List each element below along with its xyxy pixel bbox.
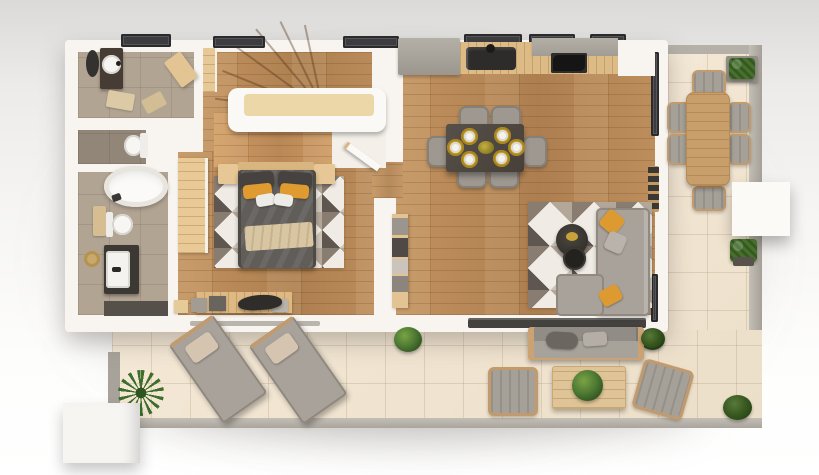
sofa-chaise (556, 274, 604, 316)
dining-chair-right (523, 136, 547, 167)
lounger-pillow (264, 332, 300, 366)
kitchen-tap (486, 44, 495, 53)
roof-window-3 (343, 36, 399, 48)
roof-window-1 (121, 34, 171, 47)
plate (511, 142, 522, 153)
desk-box-grey (191, 298, 207, 312)
basin-tap (116, 61, 121, 66)
placemat-5 (447, 139, 464, 156)
plate (450, 142, 461, 153)
terrace-main-curb-bottom (112, 418, 762, 428)
porch-block (732, 182, 790, 236)
boxwood-top (729, 58, 755, 79)
placemat-3 (461, 151, 478, 168)
terrace-main-wall-stub (108, 352, 120, 410)
plate (464, 131, 475, 142)
kitchen-cabinet-left (398, 38, 460, 75)
shower-mat (104, 301, 168, 316)
sideboard-box-taupe (392, 276, 408, 292)
placemat-6 (508, 139, 525, 156)
wc-toilet-tank (140, 133, 148, 158)
washbasin-tap (112, 267, 121, 272)
roof-window-2 (213, 36, 265, 48)
placemat-2 (494, 127, 511, 144)
terrace-bush-left (394, 327, 422, 352)
wooden-stand (93, 206, 106, 236)
plate (464, 154, 475, 165)
placemat-1 (461, 128, 478, 145)
white-planter-cube (63, 403, 140, 463)
wall-mirror (86, 50, 99, 77)
terrace-chair-right-1 (728, 102, 751, 133)
coffee-table-decor-gold (566, 232, 578, 241)
desk-box-beige (174, 300, 188, 313)
nightstand-right (314, 164, 335, 184)
hall-cabinet (203, 48, 217, 92)
bed-throw-blanket (244, 222, 314, 252)
table-centerpiece (478, 141, 494, 154)
kitchen-corner-wall (618, 40, 655, 76)
terrace-chair-right-2 (728, 134, 751, 165)
outdoor-sofa-pillow-dark (546, 331, 579, 350)
plate (496, 153, 507, 164)
floorplan-render (0, 0, 819, 475)
terrace-side-curb-top (668, 45, 762, 54)
corner-bush (723, 395, 752, 420)
lounger-pillow (184, 331, 220, 365)
wardrobe (178, 158, 208, 253)
placemat-4 (493, 150, 510, 167)
sofa-side-plant (641, 329, 663, 348)
nightstand-left (218, 164, 238, 184)
toilet-bowl (112, 214, 133, 235)
coffee-table-round-2 (563, 247, 586, 270)
terrace-dining-table (686, 92, 730, 186)
terrace-chair-bottom (692, 186, 726, 211)
outdoor-sofa-pillow-light (583, 331, 608, 347)
right-wall-window-bottom (651, 274, 658, 322)
sideboard-box-grey (392, 218, 408, 235)
bed-pillow-white-2 (273, 193, 293, 208)
sideboard-box-dark (392, 238, 408, 257)
jute-mat (84, 251, 100, 267)
desk-box-dark (209, 296, 226, 311)
wall-bedroom-living (374, 198, 392, 315)
sideboard-box-light (392, 259, 408, 274)
table-plant (572, 370, 603, 401)
outdoor-armchair-left (488, 367, 538, 416)
stair-upper-landing (244, 94, 374, 116)
kitchen-cooktop (551, 53, 587, 73)
plate (497, 130, 508, 141)
boxwood-middle-pot (733, 257, 754, 266)
